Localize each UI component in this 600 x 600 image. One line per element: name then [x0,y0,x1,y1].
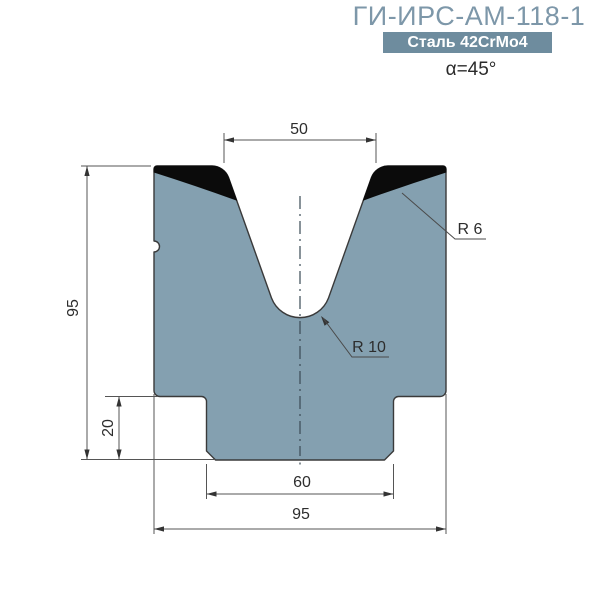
dim-label-base-width: 60 [293,474,311,492]
drawing-page: ГИ-ИРС-АМ-118-1 Сталь 42CrMo4 α=45° [0,0,600,600]
dim-label-height: 95 [65,299,83,317]
dim-label-step-height: 20 [100,419,118,437]
dim-label-groove-width: 50 [290,121,308,139]
dim-label-total-width: 95 [292,506,310,524]
callout-shoulder-radius: R 6 [458,221,483,239]
callout-groove-radius: R 10 [352,339,386,357]
